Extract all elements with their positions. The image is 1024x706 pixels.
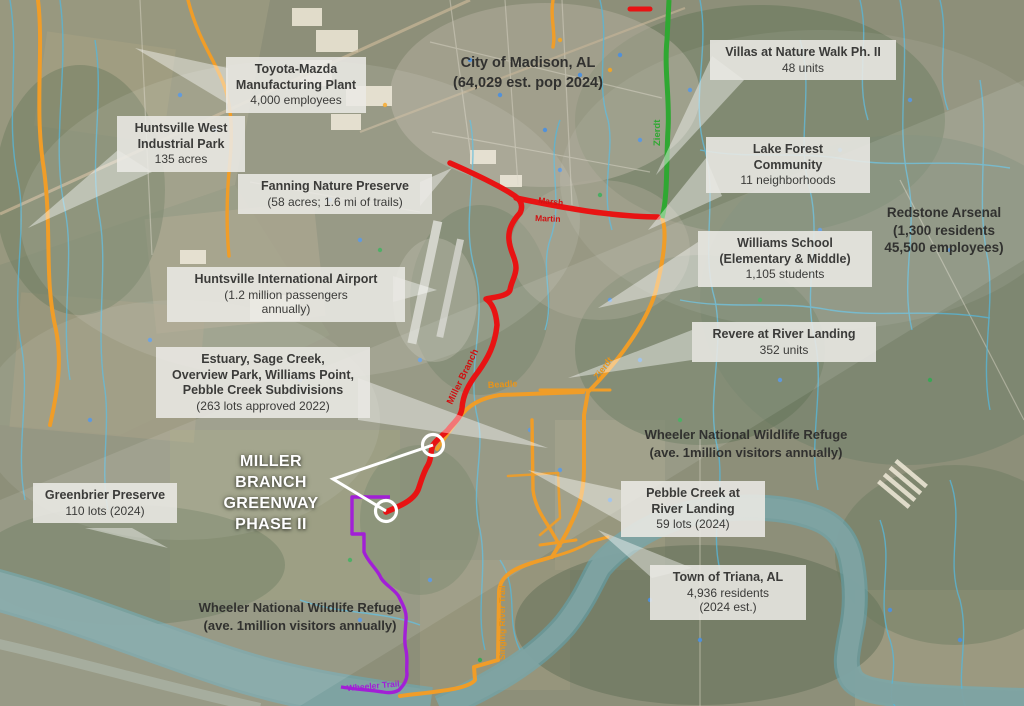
singing-river-trail-label: Singing River Trail: [497, 585, 507, 660]
label-redstone-arsenal: Redstone Arsenal (1,300 residents 45,500…: [868, 204, 1020, 257]
label-line: Wheeler National Wildlife Refuge: [636, 426, 856, 444]
callout-title: Huntsville International Airport: [173, 272, 399, 288]
callout-title: Industrial Park: [123, 137, 239, 153]
label-line: 45,500 employees): [868, 239, 1020, 257]
callout-lake-forest: Lake Forest Community 11 neighborhoods: [706, 137, 870, 193]
callout-title: Estuary, Sage Creek,: [162, 352, 364, 368]
callout-title: Fanning Nature Preserve: [244, 179, 426, 195]
callout-title: Huntsville West: [123, 121, 239, 137]
label-line: City of Madison, AL: [428, 54, 628, 74]
callout-revere: Revere at River Landing 352 units: [692, 322, 876, 362]
callout-title: Lake Forest: [712, 142, 864, 158]
label-line: Redstone Arsenal: [868, 204, 1020, 222]
callout-title: Greenbrier Preserve: [39, 488, 171, 504]
callout-sub: 110 lots (2024): [39, 504, 171, 519]
callout-sub: (1.2 million passengers: [173, 288, 399, 303]
callout-sub: 59 lots (2024): [627, 517, 759, 532]
callout-sub: (2024 est.): [656, 600, 800, 615]
callout-pebble-creek: Pebble Creek at River Landing 59 lots (2…: [621, 481, 765, 537]
callout-greenbrier: Greenbrier Preserve 110 lots (2024): [33, 483, 177, 523]
title-line: PHASE II: [202, 514, 340, 535]
callout-sub: 1,105 students: [704, 267, 866, 282]
callout-title: Revere at River Landing: [698, 327, 870, 343]
callout-title: Pebble Creek Subdivisions: [162, 383, 364, 399]
callout-toyota-mazda: Toyota-Mazda Manufacturing Plant 4,000 e…: [226, 57, 366, 113]
label-line: (ave. 1million visitors annually): [190, 617, 410, 635]
label-wheeler-refuge-east: Wheeler National Wildlife Refuge (ave. 1…: [636, 426, 856, 461]
title-line: MILLER BRANCH: [202, 451, 340, 493]
callout-sub: 4,000 employees: [232, 93, 360, 108]
wall-triana-road-top: [552, 0, 554, 47]
callout-title: Manufacturing Plant: [232, 78, 360, 94]
title-line: GREENWAY: [202, 493, 340, 514]
callout-estuary-subdivisions: Estuary, Sage Creek, Overview Park, Will…: [156, 347, 370, 418]
label-line: Wheeler National Wildlife Refuge: [190, 599, 410, 617]
callout-sub: 352 units: [698, 343, 870, 358]
callout-sub: 4,936 residents: [656, 586, 800, 601]
callout-title: Villas at Nature Walk Ph. II: [716, 45, 890, 61]
callout-sub: (58 acres; 1.6 mi of trails): [244, 195, 426, 210]
map-canvas: Zierdt Zierdt Beadle Marsh Martin Miller…: [0, 0, 1024, 706]
callout-sub: 135 acres: [123, 152, 239, 167]
label-city-of-madison: City of Madison, AL (64,029 est. pop 202…: [428, 54, 628, 93]
callout-villas-nature-walk: Villas at Nature Walk Ph. II 48 units: [710, 40, 896, 80]
callout-title: Town of Triana, AL: [656, 570, 800, 586]
callout-sub: 48 units: [716, 61, 890, 76]
callout-williams-school: Williams School (Elementary & Middle) 1,…: [698, 231, 872, 287]
callout-title: Overview Park, Williams Point,: [162, 368, 364, 384]
label-line: (1,300 residents: [868, 222, 1020, 240]
martin-road-label: Martin: [535, 213, 561, 224]
label-wheeler-refuge-south: Wheeler National Wildlife Refuge (ave. 1…: [190, 599, 410, 634]
callout-sub: annually): [173, 302, 399, 317]
label-line: (ave. 1million visitors annually): [636, 444, 856, 462]
callout-title: Community: [712, 158, 864, 174]
callout-title: Williams School: [704, 236, 866, 252]
label-line: (64,029 est. pop 2024): [428, 74, 628, 94]
callout-title: River Landing: [627, 502, 759, 518]
zierdt-green-label: Zierdt: [652, 119, 663, 146]
callout-sub: (263 lots approved 2022): [162, 399, 364, 414]
callout-huntsville-west: Huntsville West Industrial Park 135 acre…: [117, 116, 245, 172]
callout-airport: Huntsville International Airport (1.2 mi…: [167, 267, 405, 322]
callout-triana: Town of Triana, AL 4,936 residents (2024…: [650, 565, 806, 620]
callout-title: Pebble Creek at: [627, 486, 759, 502]
callout-fanning: Fanning Nature Preserve (58 acres; 1.6 m…: [238, 174, 432, 214]
callout-title: (Elementary & Middle): [704, 252, 866, 268]
callout-sub: 11 neighborhoods: [712, 173, 864, 188]
label-miller-branch-greenway-phase2: MILLER BRANCH GREENWAY PHASE II: [202, 451, 340, 535]
callout-title: Toyota-Mazda: [232, 62, 360, 78]
beadle-label: Beadle: [488, 378, 518, 390]
